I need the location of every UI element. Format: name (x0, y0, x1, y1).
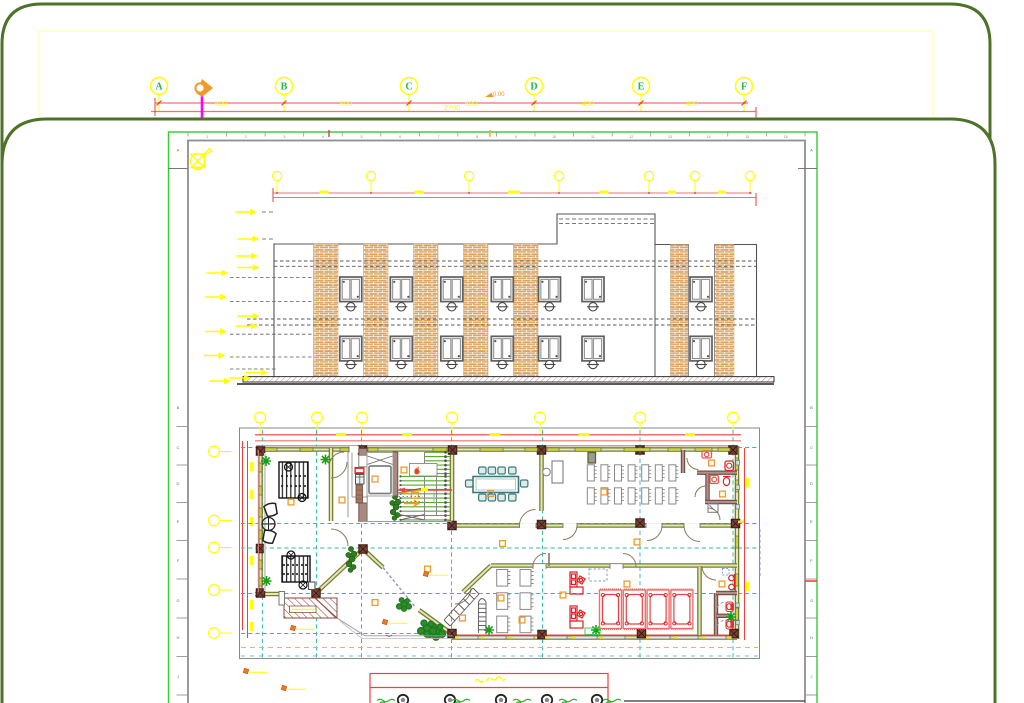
svg-text:H: H (810, 635, 813, 640)
svg-text:E: E (177, 519, 180, 524)
svg-text:10: 10 (552, 135, 556, 139)
svg-text:J: J (177, 674, 179, 679)
svg-text:7: 7 (438, 135, 440, 139)
svg-text:A: A (810, 148, 813, 153)
svg-text:590: 590 (465, 99, 478, 108)
svg-text:B: B (810, 405, 813, 410)
svg-text:2: 2 (245, 135, 247, 139)
svg-text:490: 490 (686, 99, 699, 108)
svg-text:8: 8 (476, 135, 478, 139)
svg-text:D: D (810, 481, 813, 486)
svg-text:13: 13 (668, 135, 672, 139)
svg-text:C: C (177, 445, 180, 450)
svg-text:A: A (155, 82, 163, 93)
svg-text:3: 3 (283, 135, 285, 139)
svg-text:D: D (177, 481, 180, 486)
svg-text:C: C (405, 82, 412, 93)
svg-text:6: 6 (399, 135, 401, 139)
svg-text:D: D (530, 82, 537, 93)
svg-text:E: E (810, 519, 813, 524)
svg-text:590: 590 (340, 99, 353, 108)
svg-text:14: 14 (707, 135, 711, 139)
svg-text:B: B (281, 82, 288, 93)
svg-text:H: H (177, 635, 180, 640)
svg-text:590: 590 (215, 99, 228, 108)
svg-text:16: 16 (784, 135, 788, 139)
svg-text:F: F (741, 82, 747, 93)
svg-text:A: A (177, 148, 180, 153)
svg-text:B: B (177, 405, 180, 410)
svg-text:11: 11 (591, 135, 595, 139)
svg-text:4: 4 (322, 135, 324, 139)
svg-text:490: 490 (582, 99, 595, 108)
svg-text:15: 15 (745, 135, 749, 139)
svg-text:G: G (810, 598, 813, 603)
svg-text:G: G (176, 598, 179, 603)
svg-text:9: 9 (515, 135, 517, 139)
svg-text:5: 5 (361, 135, 363, 139)
svg-text:2790: 2790 (444, 103, 461, 112)
svg-text:1: 1 (206, 135, 208, 139)
svg-text:E: E (638, 82, 645, 93)
svg-text:J: J (811, 674, 813, 679)
svg-text:12: 12 (629, 135, 633, 139)
svg-text:C: C (810, 445, 813, 450)
